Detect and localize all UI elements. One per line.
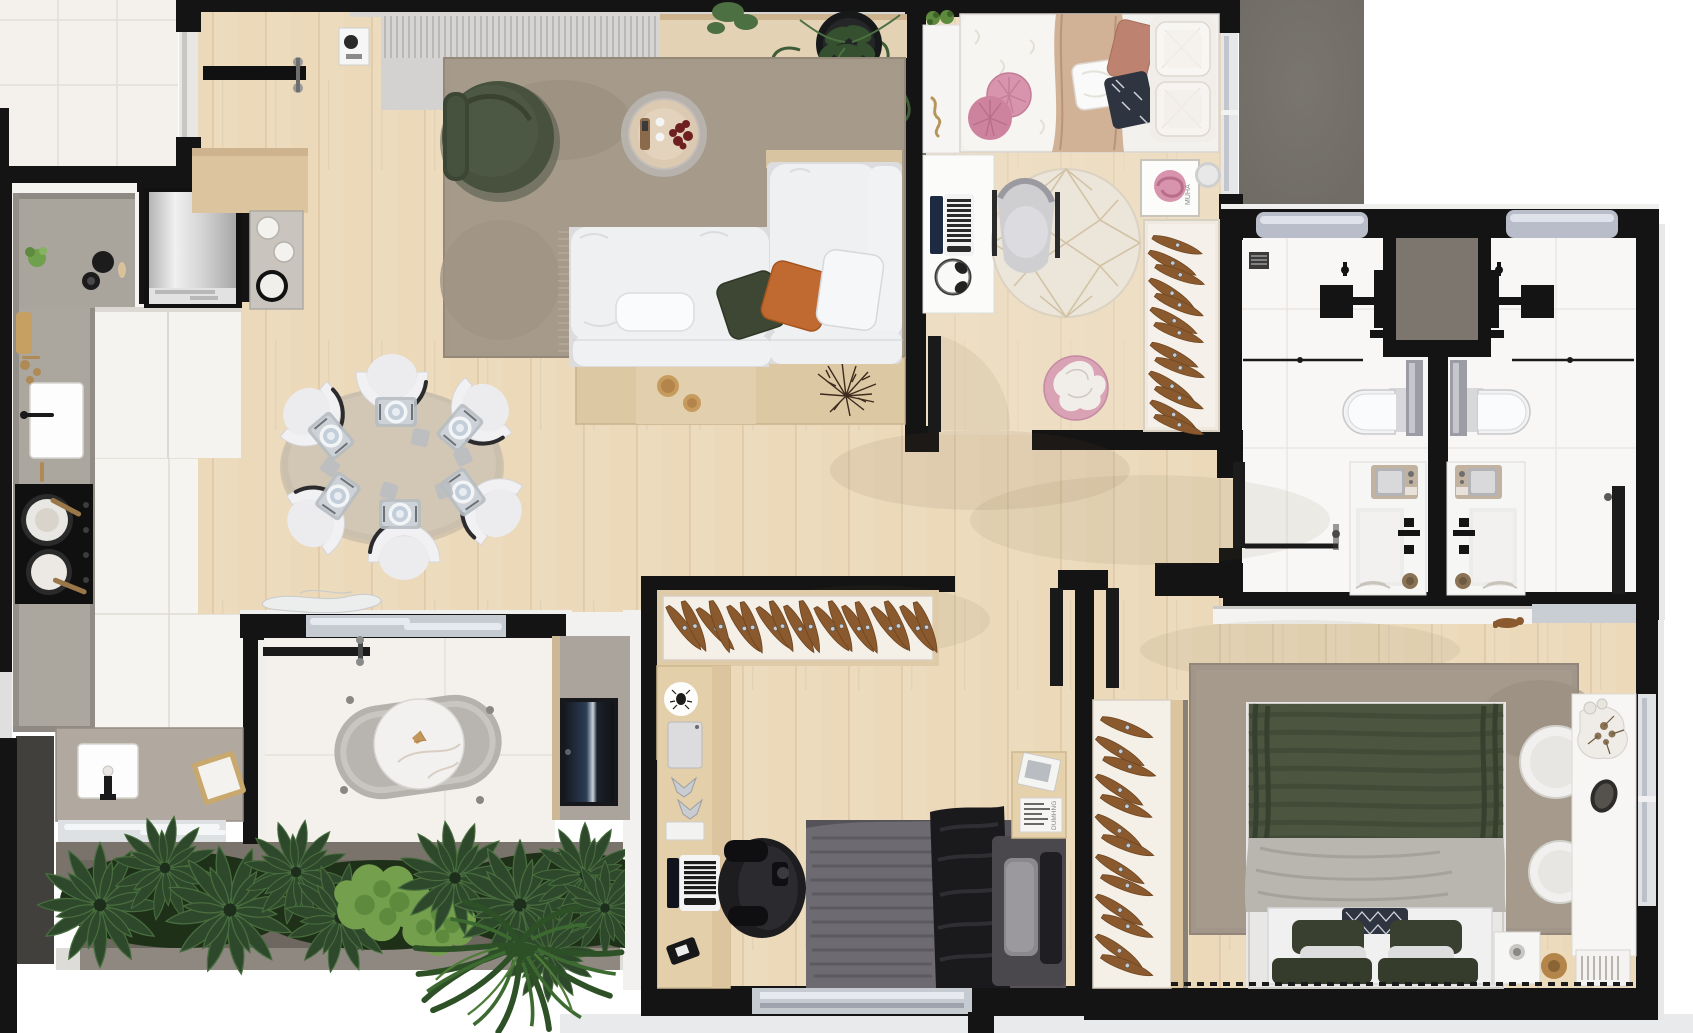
svg-text:MUHA: MUHA xyxy=(1185,184,1192,205)
svg-text:DUMHNG: DUMHNG xyxy=(1051,801,1058,830)
